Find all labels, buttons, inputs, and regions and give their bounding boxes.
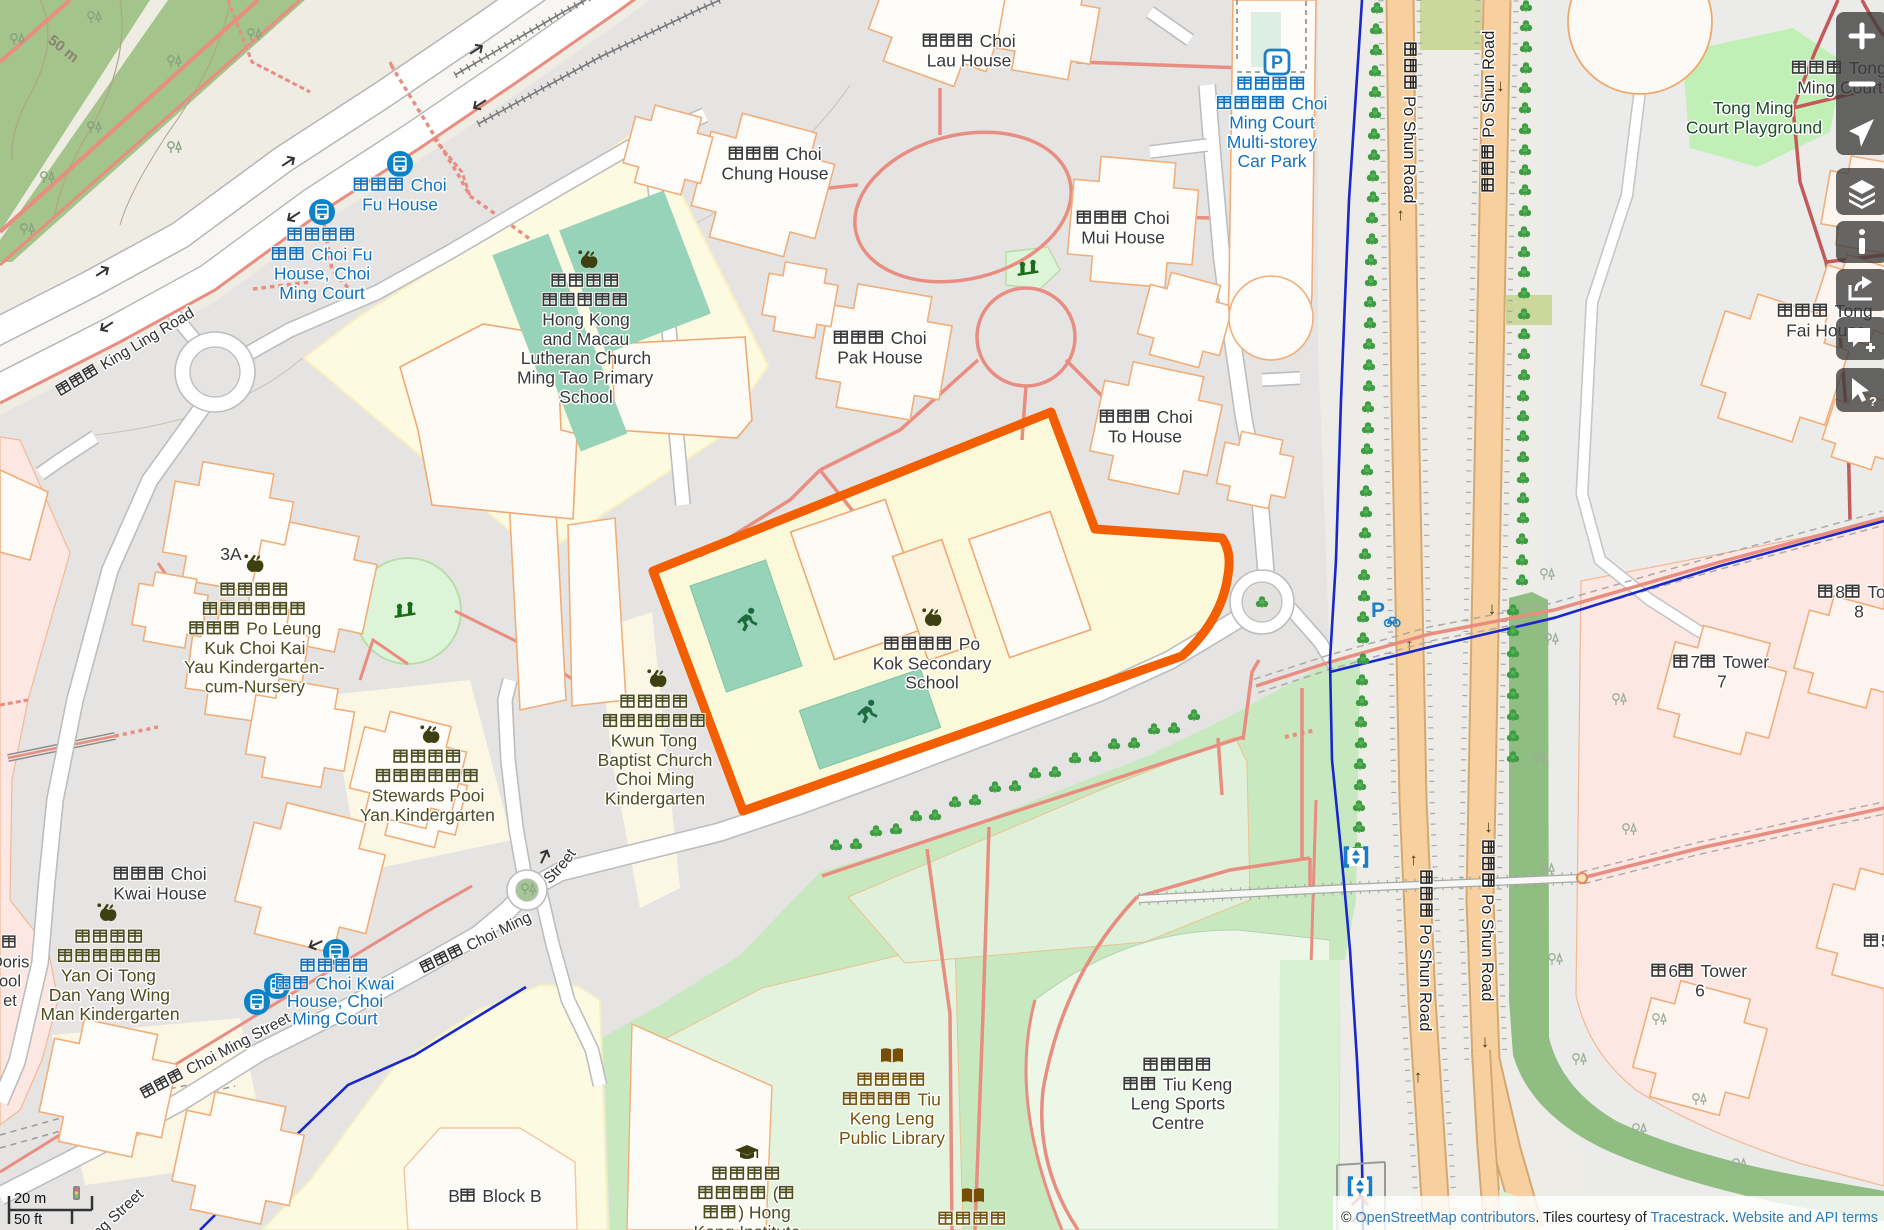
svg-text:Kwai House: Kwai House xyxy=(113,883,206,903)
svg-text:Ming Court: Ming Court xyxy=(292,1009,378,1029)
svg-text:(: ( xyxy=(768,1183,779,1203)
svg-text:Dan Yang Wing: Dan Yang Wing xyxy=(49,985,170,1005)
svg-text:20 m: 20 m xyxy=(14,1191,46,1207)
svg-text:Po: Po xyxy=(954,634,980,654)
svg-text:Baptist Church: Baptist Church xyxy=(598,750,713,770)
svg-text:Stewards Pooi: Stewards Pooi xyxy=(372,786,485,806)
svg-text:Tiu: Tiu xyxy=(912,1089,941,1109)
svg-text:Yan Kindergarten: Yan Kindergarten xyxy=(360,805,495,825)
svg-text:ool: ool xyxy=(0,973,21,991)
svg-text:↓: ↓ xyxy=(1481,1032,1490,1051)
svg-text:Tong Ming: Tong Ming xyxy=(1713,98,1794,118)
svg-text:?: ? xyxy=(1869,394,1877,409)
svg-text:Kuk Choi Kai: Kuk Choi Kai xyxy=(204,638,305,658)
svg-text:Centre: Centre xyxy=(1152,1113,1205,1133)
svg-text:Doris: Doris xyxy=(0,953,29,971)
svg-text:Po Shun Road: Po Shun Road xyxy=(1480,31,1498,143)
svg-text:B: B xyxy=(448,1186,460,1206)
svg-text:Lau House: Lau House xyxy=(927,50,1012,70)
svg-text:7: 7 xyxy=(1690,652,1700,672)
svg-text:Choi Fu: Choi Fu xyxy=(306,244,372,264)
svg-text:6: 6 xyxy=(1668,961,1678,981)
svg-text:Man Kindergarten: Man Kindergarten xyxy=(41,1004,180,1024)
svg-text:Fu House: Fu House xyxy=(362,194,438,214)
svg-text:Choi: Choi xyxy=(781,144,822,164)
svg-text:Choi: Choi xyxy=(886,328,927,348)
svg-text:Choi: Choi xyxy=(406,175,447,195)
svg-text:50 ft: 50 ft xyxy=(14,1212,42,1228)
svg-text:et: et xyxy=(3,992,17,1010)
svg-text:and Macau: and Macau xyxy=(543,329,630,349)
svg-text:Kindergarten: Kindergarten xyxy=(605,789,705,809)
svg-text:Court Playground: Court Playground xyxy=(1686,117,1822,137)
svg-text:Po Shun Road: Po Shun Road xyxy=(1478,890,1496,1002)
svg-text:P: P xyxy=(1271,53,1283,73)
svg-text:School: School xyxy=(559,387,613,407)
svg-text:Choi: Choi xyxy=(1129,208,1170,228)
svg-text:6: 6 xyxy=(1695,980,1705,1000)
svg-text:Choi Ming: Choi Ming xyxy=(616,769,695,789)
svg-text:Leng Sports: Leng Sports xyxy=(1131,1094,1226,1114)
svg-text:Multi-storey: Multi-storey xyxy=(1227,132,1318,152)
svg-text:7: 7 xyxy=(1717,671,1727,691)
svg-text:↑: ↑ xyxy=(1396,205,1405,224)
svg-text:House, Choi: House, Choi xyxy=(274,264,370,284)
svg-text:) Hong: ) Hong xyxy=(738,1203,791,1223)
svg-text:Choi: Choi xyxy=(975,31,1016,51)
svg-text:↓: ↓ xyxy=(1484,817,1493,836)
svg-text:Po Leung: Po Leung xyxy=(241,619,321,639)
svg-text:Tow: Tow xyxy=(1862,582,1884,602)
svg-text:Pak House: Pak House xyxy=(837,347,923,367)
svg-text:3A: 3A xyxy=(220,544,242,564)
svg-text:cum-Nursery: cum-Nursery xyxy=(205,677,305,697)
svg-text:Ming Court: Ming Court xyxy=(279,283,365,303)
svg-text:To House: To House xyxy=(1108,426,1182,446)
svg-text:8: 8 xyxy=(1854,601,1864,621)
svg-text:8: 8 xyxy=(1835,582,1845,602)
svg-text:Tiu Keng: Tiu Keng xyxy=(1158,1074,1232,1094)
svg-text:Tower: Tower xyxy=(1696,961,1748,981)
svg-text:Ming Court: Ming Court xyxy=(1229,113,1315,133)
svg-text:Lutheran Church: Lutheran Church xyxy=(521,348,651,368)
svg-text:Yan Oi Tong: Yan Oi Tong xyxy=(61,966,156,986)
svg-text:Choi: Choi xyxy=(1287,93,1328,113)
svg-text:Ming Tao Primary: Ming Tao Primary xyxy=(517,368,653,388)
svg-text:Po Shun Road: Po Shun Road xyxy=(1416,920,1434,1032)
svg-text:Tower: Tower xyxy=(1718,652,1770,672)
svg-text:Chung House: Chung House xyxy=(722,163,829,183)
svg-text:P: P xyxy=(1371,599,1385,622)
svg-text:↑: ↑ xyxy=(1414,1067,1423,1086)
svg-text:Kok Secondary: Kok Secondary xyxy=(873,653,992,673)
svg-text:School: School xyxy=(905,673,959,693)
svg-text:Mui House: Mui House xyxy=(1081,227,1165,247)
svg-text:Po Shun Road: Po Shun Road xyxy=(1400,92,1418,204)
svg-text:Kong Institute: Kong Institute xyxy=(694,1222,801,1230)
svg-text:↑: ↑ xyxy=(1409,850,1418,869)
svg-text:Yau Kindergarten-: Yau Kindergarten- xyxy=(184,657,325,677)
svg-text:Kwun Tong: Kwun Tong xyxy=(611,731,698,751)
svg-text:Public Library: Public Library xyxy=(839,1128,945,1148)
svg-text:Block B: Block B xyxy=(478,1186,542,1206)
svg-text:Keng Leng: Keng Leng xyxy=(850,1109,935,1129)
svg-text:© OpenStreetMap contributors.: © OpenStreetMap contributors. Tiles cour… xyxy=(1341,1209,1878,1226)
svg-text:Choi: Choi xyxy=(1152,407,1193,427)
svg-text:Hong Kong: Hong Kong xyxy=(542,310,630,330)
svg-text:Choi: Choi xyxy=(166,864,207,884)
svg-text:Car Park: Car Park xyxy=(1238,151,1307,171)
